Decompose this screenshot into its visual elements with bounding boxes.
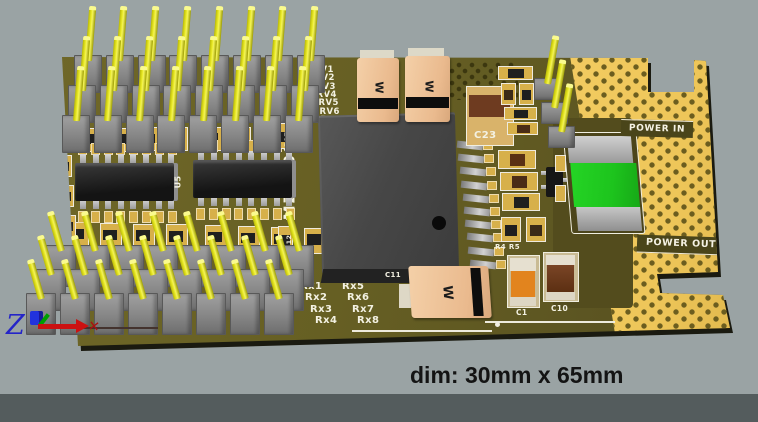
silk-label-c23: C23 xyxy=(474,131,496,142)
qfp-pin xyxy=(461,180,488,189)
silk-label-c1: C1 xyxy=(516,309,528,317)
viewport-bottom-strip xyxy=(0,394,758,422)
qfp-pin xyxy=(458,154,485,163)
smd-part xyxy=(507,122,538,135)
x-axis-marker: ✕ xyxy=(87,319,101,334)
smd-part xyxy=(555,155,566,172)
power-out-strip: POWER OUT xyxy=(637,234,726,255)
smd-part xyxy=(500,172,538,191)
smd-body xyxy=(505,225,517,236)
cap-body xyxy=(511,271,535,297)
fuse-end-cap xyxy=(576,207,642,231)
soic-pad xyxy=(234,208,243,220)
capacitor-marking: W xyxy=(374,81,385,93)
inductor-cap-right: W xyxy=(405,56,450,122)
smd-part xyxy=(502,193,540,211)
smd-body xyxy=(514,197,529,208)
header-base xyxy=(264,293,294,335)
cap-pad xyxy=(510,297,536,306)
silk-label-rx: Rx3 xyxy=(310,305,332,316)
smd-part xyxy=(501,83,516,105)
polarity-stripe xyxy=(406,97,449,108)
fuse-holder xyxy=(563,132,646,234)
qfp-pad xyxy=(486,167,496,176)
power-module-chip xyxy=(318,112,459,274)
silk-label-u5: U5 xyxy=(175,176,183,189)
polarity-stripe xyxy=(470,268,483,316)
smd-part xyxy=(519,83,534,105)
dimension-caption: dim: 30mm x 65mm xyxy=(410,362,623,390)
soic-chip xyxy=(75,163,178,201)
smd-part xyxy=(498,150,536,169)
silk-label-rx: Rx6 xyxy=(347,293,369,304)
cap-pad xyxy=(546,292,575,300)
smd-body xyxy=(61,162,69,171)
power-in-strip: POWER IN xyxy=(621,119,693,138)
silk-label-rx: Rx7 xyxy=(352,305,374,316)
qfp-pin xyxy=(462,193,489,202)
soic-pad xyxy=(196,208,205,220)
soic-pad xyxy=(168,211,177,223)
x-axis-arrow-shaft xyxy=(38,324,78,329)
pin1-dot xyxy=(432,216,446,230)
smd-body xyxy=(512,176,527,188)
smd-body xyxy=(510,154,525,166)
smd-part xyxy=(504,107,537,120)
soic-pad xyxy=(129,211,138,223)
silk-label-rx: Rx4 xyxy=(315,316,337,327)
edge-part xyxy=(58,155,72,177)
edge-part xyxy=(60,185,74,207)
silk-label-u4: U4 xyxy=(57,180,65,193)
qfp-pad xyxy=(491,220,501,229)
cap-pad xyxy=(510,258,536,271)
soic-pad xyxy=(260,208,269,220)
silk-label-power-out: POWER OUT xyxy=(646,237,717,250)
qfp-pad xyxy=(489,194,499,203)
soic-chip xyxy=(193,160,296,198)
silk-label-c11: C11 xyxy=(385,272,401,279)
smd-body xyxy=(530,225,542,236)
smd-part xyxy=(526,217,546,242)
header-base xyxy=(128,293,158,335)
polarity-stripe xyxy=(358,98,398,109)
silk-label-rx: Rx2 xyxy=(305,293,327,304)
header-base xyxy=(196,293,226,335)
smd-body xyxy=(307,234,321,244)
fuse-end-cap xyxy=(567,136,633,163)
qfp-pin xyxy=(467,233,494,242)
qfp-pad xyxy=(490,207,500,216)
qfp-pin xyxy=(465,220,492,229)
smd-body xyxy=(63,192,71,201)
silk-dot xyxy=(495,322,500,327)
inductor-cap-left: W xyxy=(357,58,399,122)
sot23-lead xyxy=(541,171,546,175)
cap-pad xyxy=(546,255,575,265)
z-axis-label: Z xyxy=(6,312,25,339)
smd-body xyxy=(504,90,513,100)
smd-part xyxy=(555,185,566,202)
qfp-pin xyxy=(464,207,491,216)
capacitor-marking: W xyxy=(440,285,454,299)
silk-label-power-in: POWER IN xyxy=(629,123,685,134)
sot23-lead xyxy=(541,185,546,189)
edge-part xyxy=(62,215,76,237)
smd-body xyxy=(508,69,524,78)
silk-label-r4r5: R4 R5 xyxy=(495,244,520,251)
smd-part xyxy=(501,217,521,242)
smd-body xyxy=(65,222,73,231)
capacitor-c10 xyxy=(543,252,579,302)
capacitor-c1 xyxy=(507,255,540,308)
header-base xyxy=(230,293,260,335)
fuse-body xyxy=(570,163,640,207)
silk-label-rx: Rx8 xyxy=(357,316,379,327)
cap-body xyxy=(547,265,574,292)
soic-pad xyxy=(104,211,113,223)
silk-label-rx: Rx5 xyxy=(342,282,364,293)
cad-3d-viewport[interactable]: SRV1 SRV2 SRV3 SRV4 SRV5 SRV6 SRV7 LMZ12… xyxy=(0,0,758,422)
capacitor-marking: W xyxy=(424,80,435,92)
qfp-pad xyxy=(484,154,494,163)
silk-line xyxy=(485,321,615,323)
capacitor-c11-body: W xyxy=(408,266,492,318)
smd-body xyxy=(517,125,530,133)
soic-pad xyxy=(91,211,100,223)
header-base xyxy=(162,293,192,335)
smd-body xyxy=(522,90,531,100)
qfp-pad xyxy=(496,260,506,269)
soic-pad xyxy=(273,208,282,220)
qfp-pad xyxy=(487,181,497,190)
smd-body xyxy=(514,110,528,118)
silk-label-c10: C10 xyxy=(551,305,568,313)
silk-line xyxy=(352,330,492,332)
qfp-pin xyxy=(460,167,487,176)
smd-part xyxy=(498,66,533,80)
qfp-pin xyxy=(468,246,495,255)
